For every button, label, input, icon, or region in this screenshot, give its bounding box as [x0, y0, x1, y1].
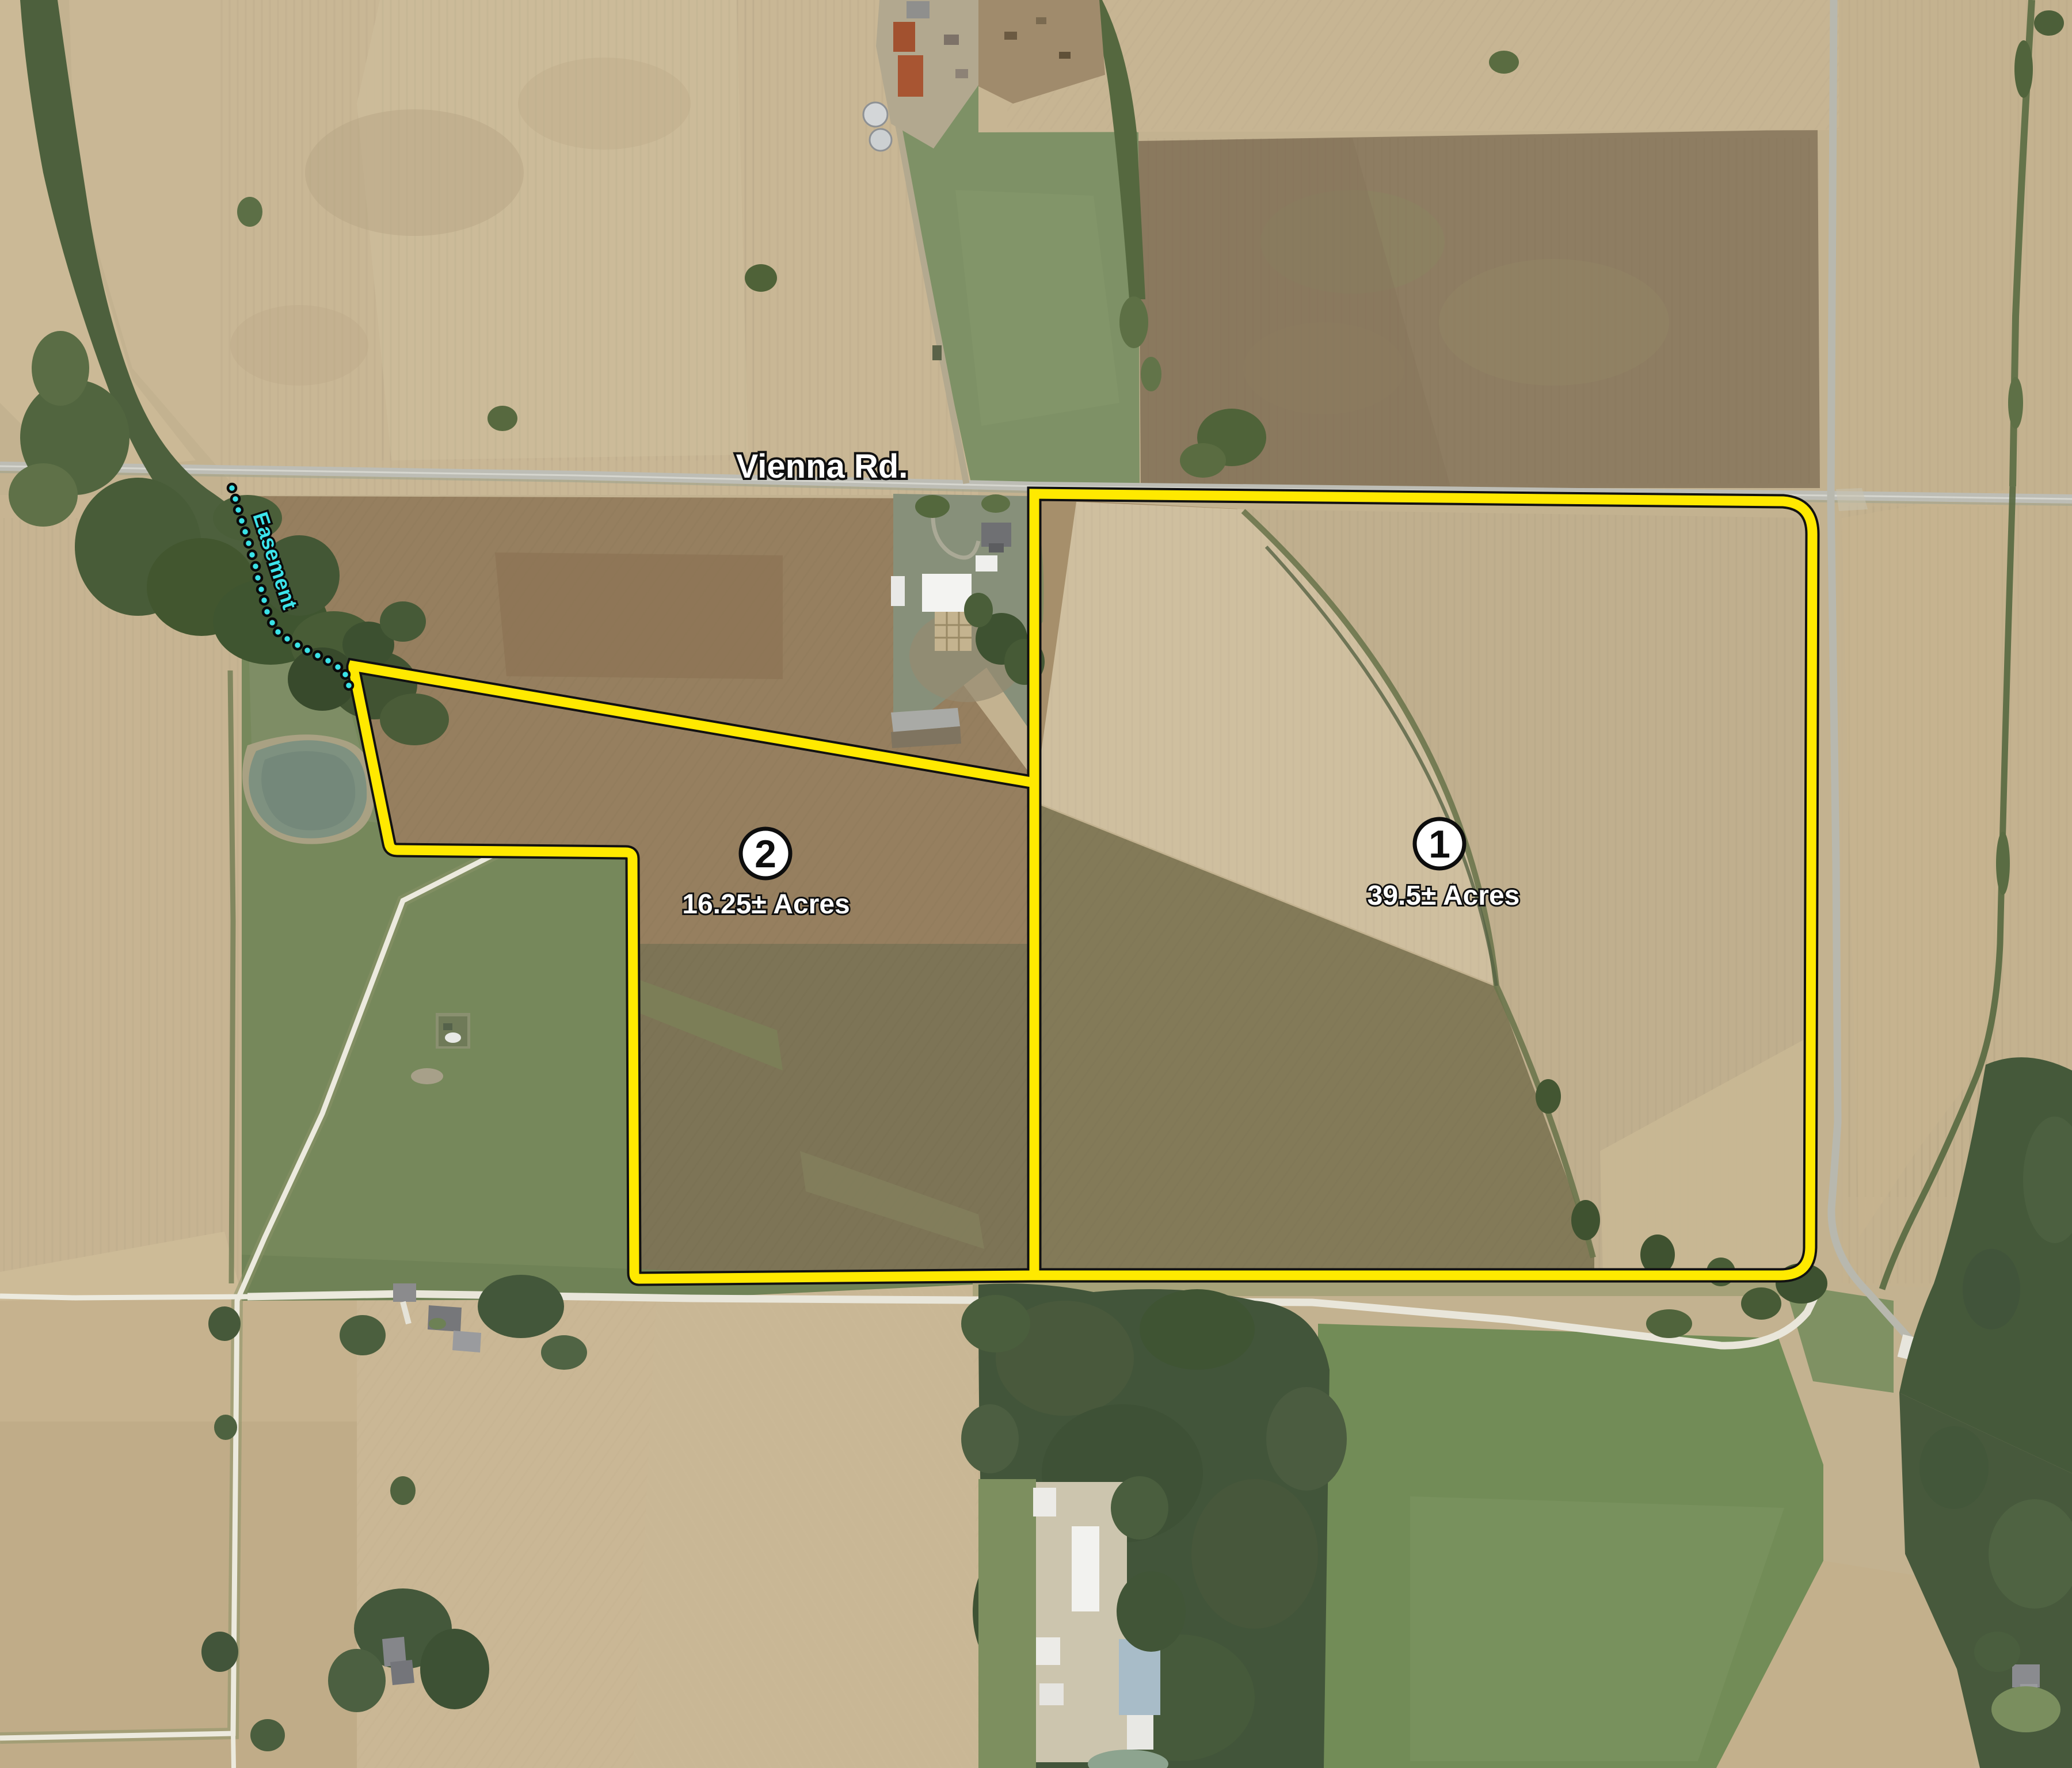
svg-text:1: 1 [1429, 822, 1450, 866]
svg-text:39.5± Acres: 39.5± Acres [1368, 881, 1520, 911]
svg-text:16.25± Acres: 16.25± Acres [682, 889, 850, 920]
svg-text:2: 2 [755, 832, 776, 876]
svg-text:Vienna Rd.: Vienna Rd. [736, 448, 908, 485]
